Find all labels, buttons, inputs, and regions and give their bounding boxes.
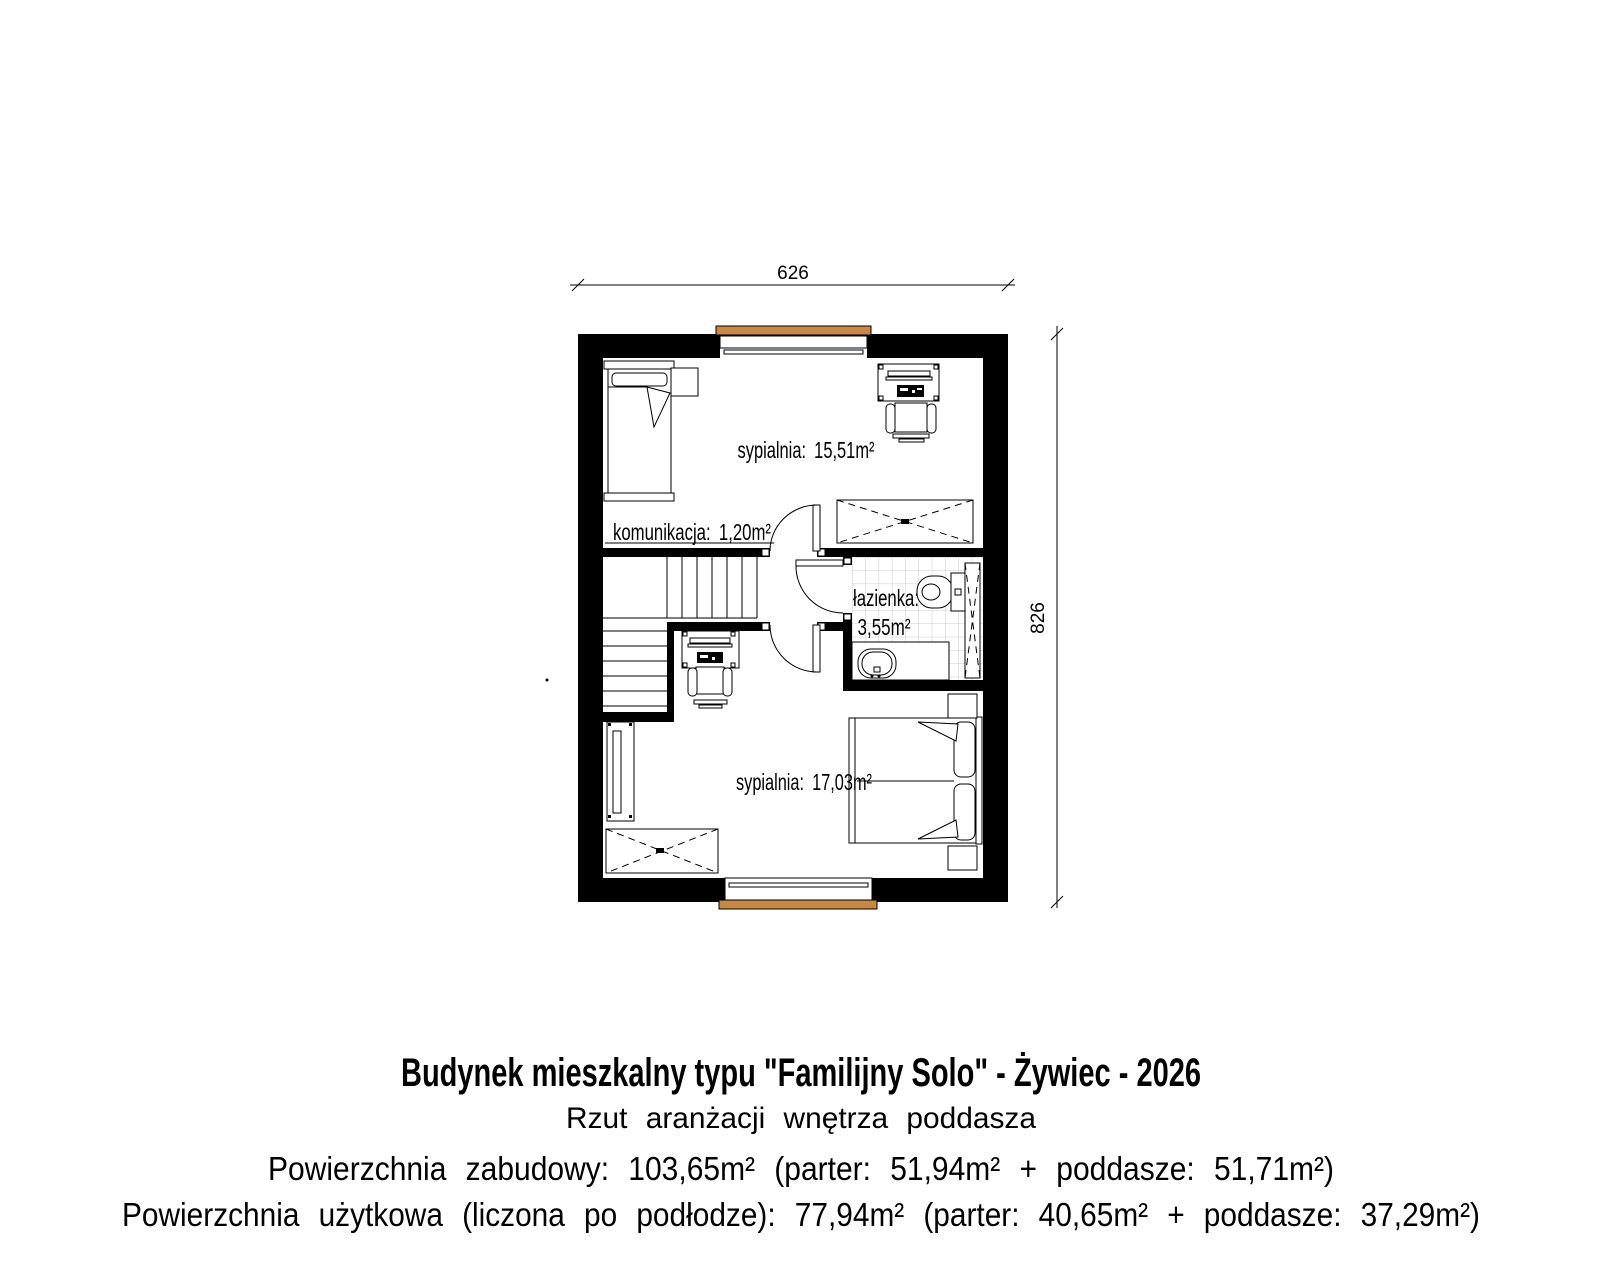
window-bottom (719, 878, 877, 909)
desk-bedroom-top (878, 364, 939, 401)
dot-artifact (546, 679, 549, 682)
dimension-right: 826 (1028, 326, 1063, 908)
door-bedroom-top (770, 505, 820, 551)
dimension-top: 626 (570, 263, 1015, 291)
office-chair-bottom (688, 667, 732, 708)
room-label-bathroom-name: łazienka: (853, 585, 919, 611)
area-usable-line: Powierzchnia użytkowa (liczona po podłod… (122, 1196, 1480, 1233)
sheet-title: Budynek mieszkalny typu "Familijny Solo"… (401, 1051, 1201, 1095)
room-label-bedroom-top: sypialnia: 15,51m² (738, 437, 875, 463)
washbasin-vanity (852, 642, 949, 680)
room-label-bathroom-area: 3,55m² (858, 614, 911, 640)
door-bedroom-bottom (770, 625, 820, 672)
dresser-panel (607, 722, 634, 821)
side-table (671, 368, 698, 396)
sheet-subtitle: Rzut aranżacji wnętrza poddasza (566, 1102, 1036, 1135)
area-built-line: Powierzchnia zabudowy: 103,65m² (parter:… (268, 1150, 1334, 1187)
floor-plan-sheet: sypialnia: 15,51m² komunikacja: 1,20m² ł… (0, 0, 1600, 1280)
svg-text:komunikacja: 1,20m²: komunikacja: 1,20m² (613, 519, 771, 545)
toilet (917, 573, 965, 611)
desk-bedroom-bottom (682, 631, 739, 668)
single-bed (604, 361, 674, 501)
floor-plan: sypialnia: 15,51m² komunikacja: 1,20m² ł… (546, 326, 1009, 909)
wardrobe-top (837, 500, 973, 543)
wardrobe-bottom (606, 829, 718, 873)
room-label-corridor: komunikacja: 1,20m² (605, 519, 774, 545)
dimension-right-label: 826 (1028, 602, 1049, 634)
dimension-top-label: 626 (777, 263, 809, 284)
shower (965, 563, 980, 678)
title-block: Budynek mieszkalny typu "Familijny Solo"… (122, 1051, 1480, 1233)
door-bathroom (796, 560, 843, 613)
window-top (716, 326, 871, 354)
room-label-bedroom-bottom: sypialnia: 17,03m² (736, 769, 872, 795)
office-chair-top (886, 403, 936, 442)
nightstand-bottom (948, 846, 977, 870)
nightstand-top (948, 694, 977, 718)
